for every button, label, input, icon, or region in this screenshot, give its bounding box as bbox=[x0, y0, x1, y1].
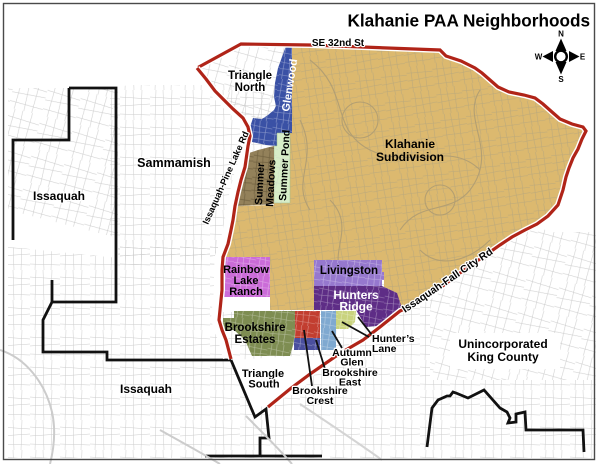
svg-text:Unincorporated: Unincorporated bbox=[458, 337, 547, 351]
svg-text:King County: King County bbox=[467, 350, 539, 364]
svg-text:Brookshire: Brookshire bbox=[225, 322, 286, 334]
svg-text:Estates: Estates bbox=[235, 334, 276, 346]
svg-text:Issaquah: Issaquah bbox=[33, 189, 85, 203]
svg-text:Ranch: Ranch bbox=[229, 286, 263, 298]
svg-text:W: W bbox=[535, 53, 543, 62]
svg-text:Lane: Lane bbox=[372, 343, 397, 355]
svg-text:Klahanie PAA Neighborhoods: Klahanie PAA Neighborhoods bbox=[347, 11, 590, 31]
svg-text:Klahanie: Klahanie bbox=[385, 137, 435, 151]
svg-text:Ridge: Ridge bbox=[339, 300, 373, 314]
svg-text:Sammamish: Sammamish bbox=[137, 156, 211, 170]
svg-text:Crest: Crest bbox=[307, 395, 334, 407]
svg-text:N: N bbox=[558, 30, 564, 39]
svg-text:Livingston: Livingston bbox=[320, 265, 378, 277]
svg-text:E: E bbox=[580, 53, 586, 62]
svg-text:Triangle: Triangle bbox=[228, 70, 272, 82]
svg-text:South: South bbox=[248, 379, 279, 391]
svg-text:SE 32nd St: SE 32nd St bbox=[312, 38, 365, 49]
svg-text:East: East bbox=[339, 377, 362, 389]
svg-text:Subdivision: Subdivision bbox=[376, 150, 444, 164]
svg-text:Glen: Glen bbox=[340, 357, 363, 369]
svg-text:S: S bbox=[558, 75, 564, 84]
svg-text:Issaquah: Issaquah bbox=[120, 382, 172, 396]
svg-text:North: North bbox=[235, 82, 266, 94]
